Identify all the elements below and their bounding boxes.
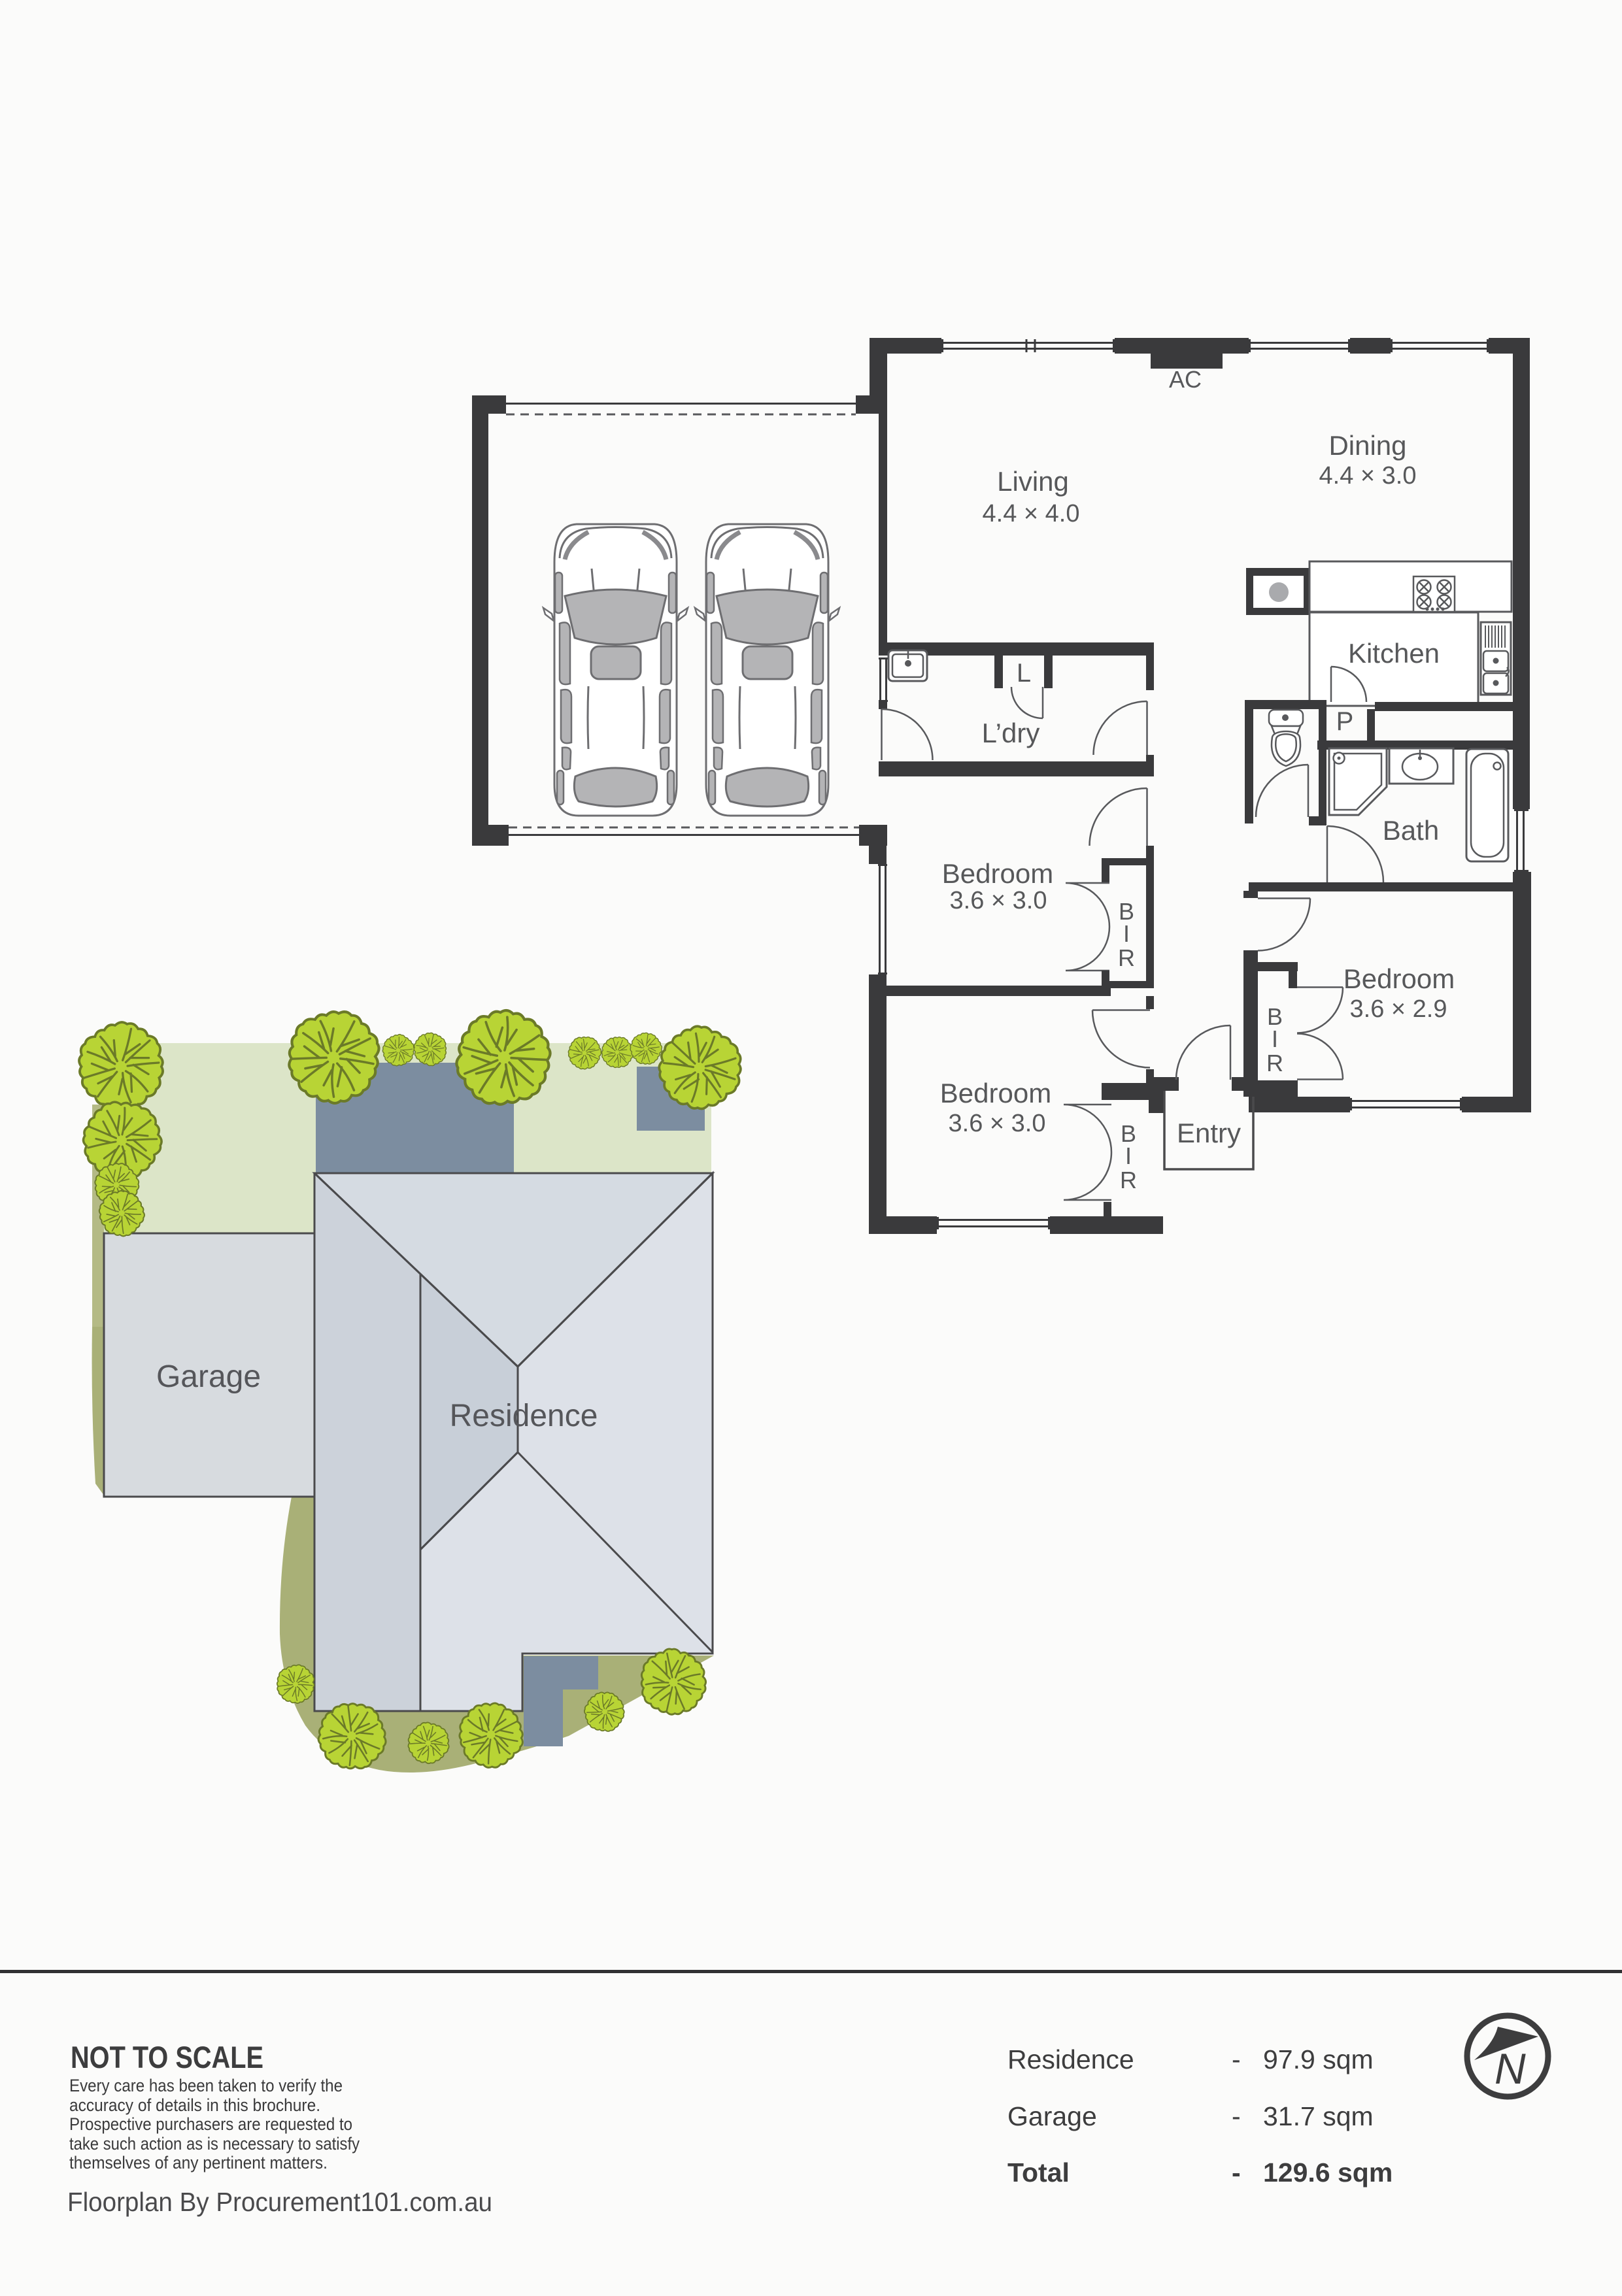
svg-text:Living: Living [997, 466, 1069, 497]
svg-text:Garage: Garage [1007, 2101, 1097, 2131]
svg-text:4.4 × 4.0: 4.4 × 4.0 [983, 500, 1080, 527]
svg-text:31.7 sqm: 31.7 sqm [1263, 2101, 1374, 2131]
svg-text:N: N [1495, 2044, 1526, 2093]
svg-text:L’dry: L’dry [982, 718, 1040, 748]
svg-text:Bath: Bath [1383, 815, 1439, 846]
svg-text:accuracy of details in this br: accuracy of details in this brochure. [69, 2095, 320, 2115]
svg-text:I: I [1272, 1025, 1278, 1052]
svg-text:3.6 × 3.0: 3.6 × 3.0 [949, 1110, 1046, 1137]
svg-text:NOT TO SCALE: NOT TO SCALE [71, 2040, 263, 2074]
svg-text:Every care has been taken to v: Every care has been taken to verify the [69, 2076, 343, 2095]
svg-text:-: - [1232, 2157, 1241, 2188]
svg-text:Bedroom: Bedroom [940, 1078, 1051, 1108]
svg-text:R: R [1120, 1167, 1137, 1193]
svg-text:Residence: Residence [450, 1399, 598, 1433]
svg-text:P: P [1336, 707, 1354, 736]
svg-text:-: - [1232, 2101, 1241, 2131]
svg-text:Prospective purchasers are req: Prospective purchasers are requested to [69, 2114, 352, 2134]
svg-text:Dining: Dining [1328, 430, 1406, 461]
svg-text:themselves of any pertinent ma: themselves of any pertinent matters. [69, 2153, 328, 2172]
svg-text:R: R [1266, 1050, 1283, 1076]
svg-text:97.9 sqm: 97.9 sqm [1263, 2044, 1374, 2074]
svg-text:I: I [1125, 1142, 1132, 1169]
svg-text:Kitchen: Kitchen [1348, 638, 1440, 669]
svg-text:Residence: Residence [1007, 2044, 1134, 2074]
svg-text:Entry: Entry [1177, 1118, 1241, 1148]
svg-text:Bedroom: Bedroom [942, 858, 1053, 889]
svg-text:3.6 × 2.9: 3.6 × 2.9 [1350, 995, 1447, 1023]
svg-text:R: R [1118, 944, 1135, 971]
svg-text:AC: AC [1169, 366, 1202, 393]
svg-text:-: - [1232, 2044, 1241, 2074]
svg-text:Bedroom: Bedroom [1343, 963, 1455, 994]
svg-text:L: L [1017, 659, 1031, 688]
svg-text:3.6 × 3.0: 3.6 × 3.0 [950, 887, 1047, 914]
svg-text:Floorplan By Procurement101.co: Floorplan By Procurement101.com.au [67, 2187, 492, 2217]
svg-text:I: I [1123, 920, 1130, 947]
svg-text:Total: Total [1007, 2157, 1070, 2188]
svg-text:129.6 sqm: 129.6 sqm [1263, 2157, 1393, 2188]
svg-text:take such action as is necessa: take such action as is necessary to sati… [69, 2134, 360, 2154]
svg-text:Garage: Garage [156, 1359, 261, 1394]
svg-text:4.4 × 3.0: 4.4 × 3.0 [1319, 462, 1417, 490]
